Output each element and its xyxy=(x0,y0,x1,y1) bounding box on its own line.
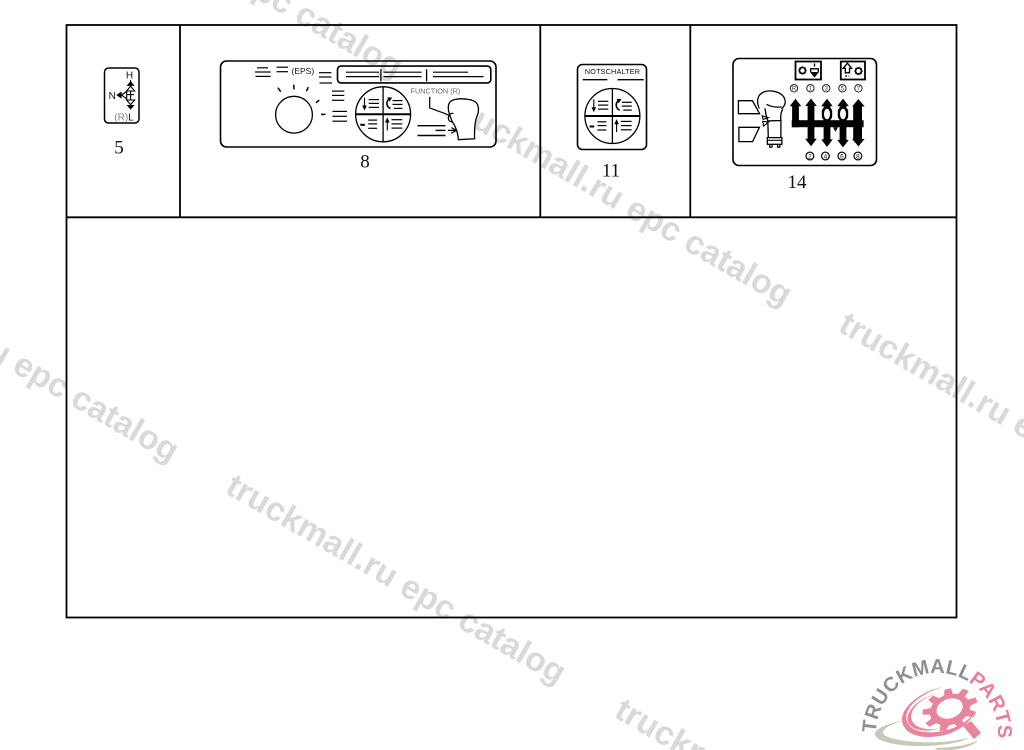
svg-text:8: 8 xyxy=(360,152,370,173)
svg-text:4: 4 xyxy=(824,153,828,160)
svg-text:H: H xyxy=(126,71,133,82)
svg-text:N: N xyxy=(109,91,116,102)
svg-text:truckmall.ru epc catalog: truckmall.ru epc catalog xyxy=(0,245,185,470)
svg-text:truckmall.ru epc catalog: truckmall.ru epc catalog xyxy=(220,467,572,692)
svg-text:11: 11 xyxy=(602,161,620,182)
svg-text:R: R xyxy=(792,87,797,93)
svg-text:5: 5 xyxy=(114,138,124,159)
svg-text:TRUCKMALLPARTS: TRUCKMALLPARTS xyxy=(859,656,1015,739)
svg-text:2: 2 xyxy=(808,153,812,160)
svg-text:FUNCTION (R): FUNCTION (R) xyxy=(411,87,461,96)
svg-text:6: 6 xyxy=(840,153,844,160)
svg-text:8: 8 xyxy=(856,153,860,160)
svg-text:(EPS): (EPS) xyxy=(292,66,315,76)
svg-text:truckmall.ru epc catalog: truckmall.ru epc catalog xyxy=(833,305,1024,530)
svg-text:NOTSCHALTER: NOTSCHALTER xyxy=(585,67,640,76)
svg-text:(R)L: (R)L xyxy=(114,113,134,124)
svg-text:14: 14 xyxy=(788,172,808,193)
